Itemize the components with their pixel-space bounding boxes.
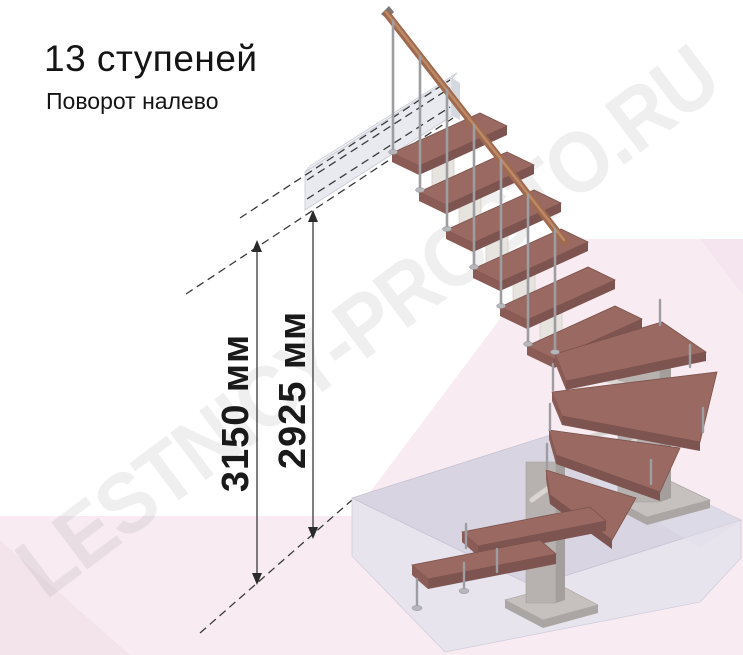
page-title: 13 ступеней bbox=[44, 38, 258, 80]
baluster-base bbox=[443, 227, 452, 232]
baluster-base bbox=[416, 188, 425, 193]
baluster-base bbox=[470, 265, 479, 270]
baluster-base bbox=[497, 304, 506, 309]
step-leg-foot bbox=[412, 605, 422, 610]
dimension-label-3150: 3150 мм bbox=[215, 334, 257, 492]
baluster-base bbox=[389, 150, 398, 155]
page-subtitle: Поворот налево bbox=[46, 88, 219, 115]
step-leg-foot bbox=[459, 588, 469, 593]
dimension-2925: 2925 мм bbox=[272, 210, 318, 539]
baluster-base bbox=[551, 350, 560, 355]
screenshot-root: LESTNICY-PROSTO.RU bbox=[0, 0, 743, 655]
arrowhead-up bbox=[308, 210, 318, 222]
baluster-base bbox=[524, 342, 533, 347]
arrowhead-up bbox=[252, 240, 262, 252]
dimension-label-2925: 2925 мм bbox=[272, 311, 314, 469]
